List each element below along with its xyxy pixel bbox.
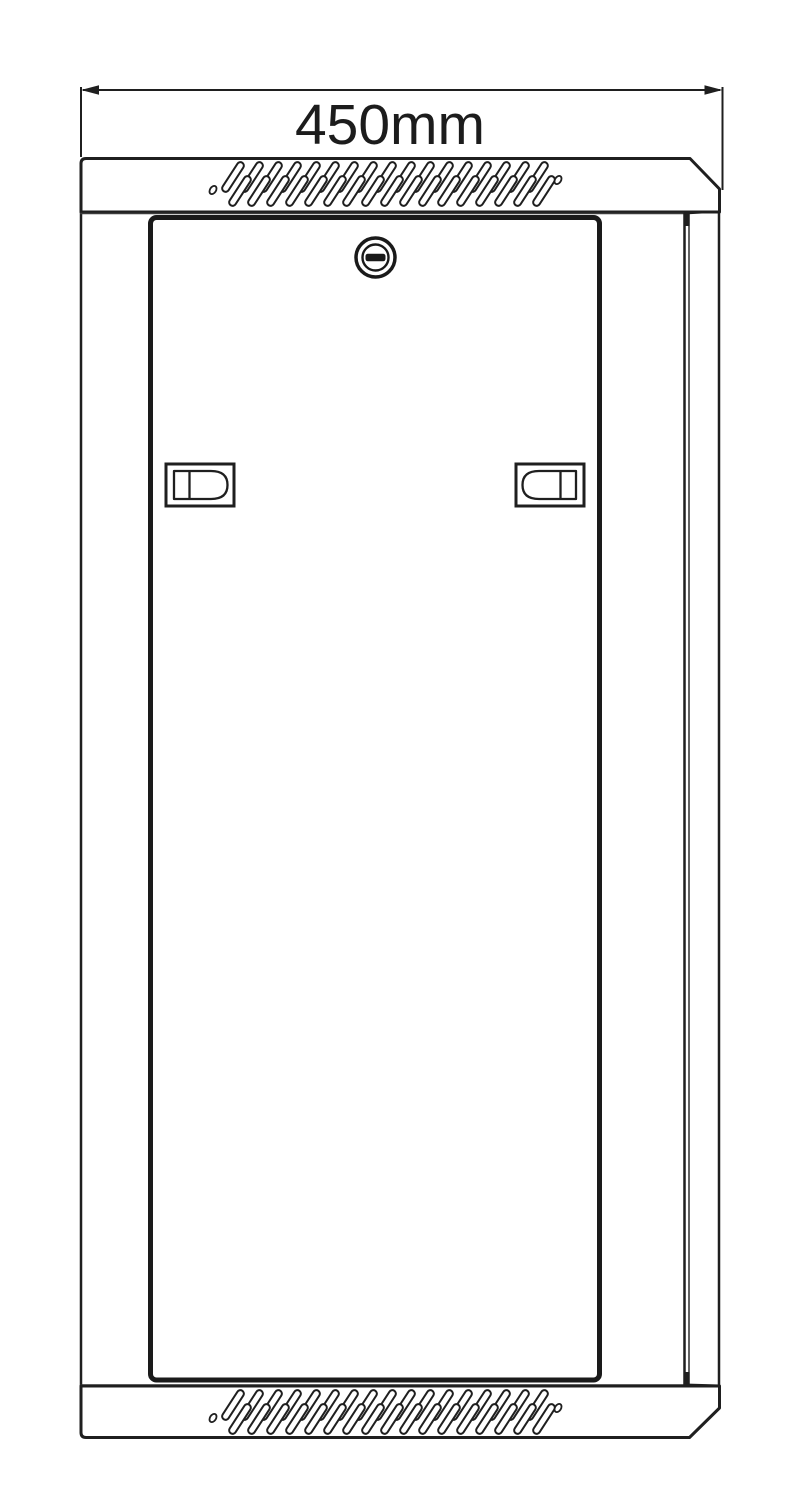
right-latch (516, 464, 584, 506)
left-latch-handle (174, 471, 228, 499)
bottom-vent-panel (81, 1386, 720, 1438)
dimension-arrow-right-icon (705, 85, 723, 95)
right-side-edge-strip (684, 211, 720, 1386)
top-vent-panel (81, 159, 720, 213)
front-door-panel (151, 218, 600, 1381)
dimension-label: 450mm (295, 93, 485, 157)
dimension-arrow-left-icon (81, 85, 99, 95)
right-latch-handle (523, 471, 577, 499)
door-lock-icon (356, 238, 395, 277)
cabinet-front-elevation-svg: 450mm (0, 0, 794, 1500)
lock-keyway-slot (366, 254, 386, 262)
cabinet-technical-drawing: 450mm (0, 0, 794, 1500)
cabinet-body-frame (80, 211, 720, 1386)
left-latch (166, 464, 234, 506)
